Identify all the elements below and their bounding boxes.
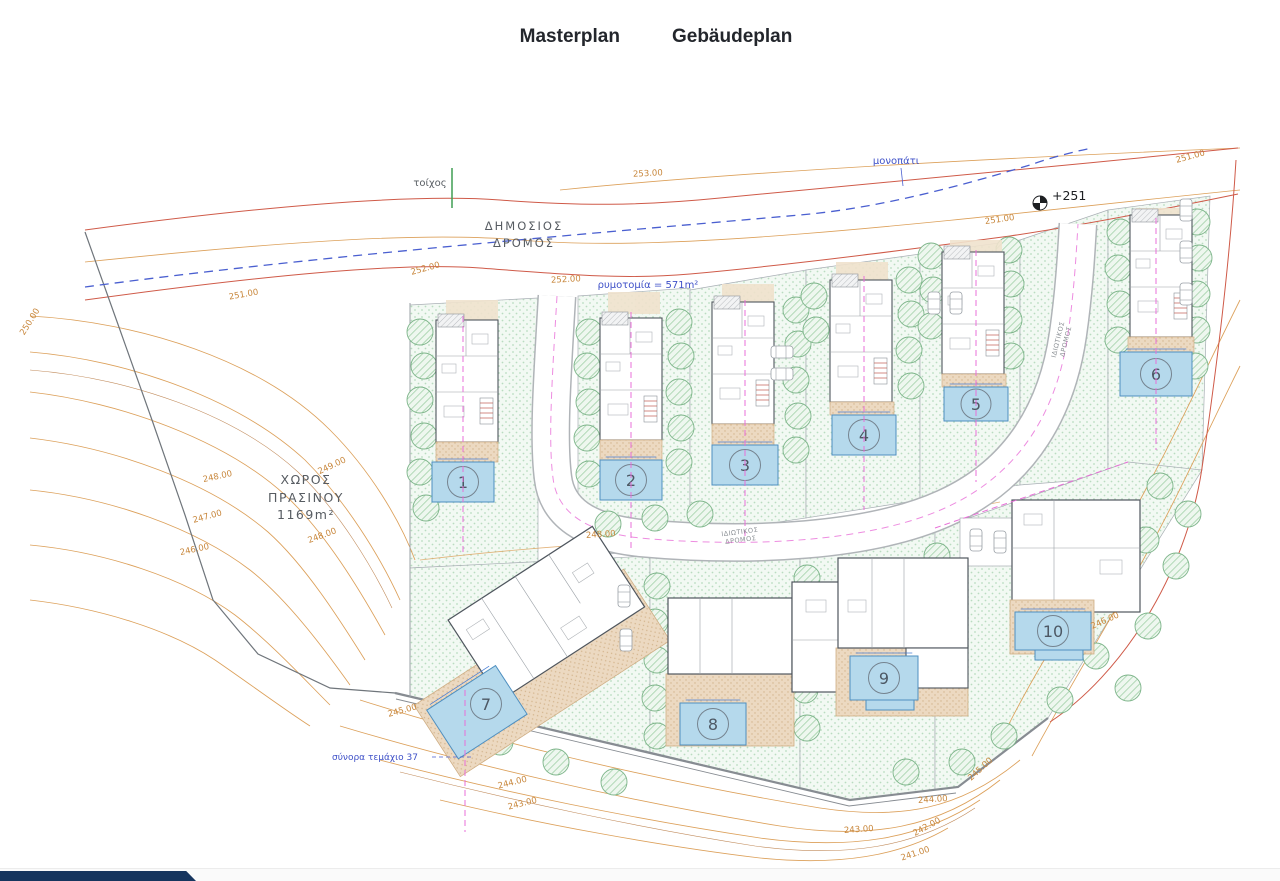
rymotomia-label: ρυμοτομία = 571m²	[598, 279, 699, 291]
svg-text:248.00: 248.00	[586, 529, 616, 541]
svg-text:251.00: 251.00	[1175, 148, 1206, 165]
svg-text:250.00: 250.00	[18, 307, 42, 338]
svg-text:10: 10	[1043, 622, 1063, 641]
svg-text:253.00: 253.00	[633, 168, 663, 180]
green-space-label-2: ΠΡΑΣΙΝΟΥ	[268, 490, 344, 505]
masterplan-container: 1 2 3 4	[0, 0, 1280, 881]
svg-text:244.00: 244.00	[918, 794, 948, 806]
green-space-area: 1169m²	[277, 507, 335, 522]
boundary-note-label: σύνορα τεμάχιο 37	[332, 752, 418, 763]
svg-text:243.00: 243.00	[844, 824, 874, 836]
bottom-bar-partial[interactable]	[0, 871, 196, 881]
svg-text:251.00: 251.00	[228, 288, 259, 303]
svg-text:252.00: 252.00	[551, 274, 581, 286]
svg-text:9: 9	[879, 669, 889, 688]
public-road-label-2: ΔΡΟΜΟΣ	[493, 236, 555, 250]
svg-text:251.00: 251.00	[984, 213, 1015, 227]
svg-text:246.00: 246.00	[179, 542, 210, 558]
svg-text:248.00: 248.00	[307, 526, 338, 546]
plot-8-marker[interactable]: 8	[680, 700, 746, 745]
svg-text:244.00: 244.00	[497, 775, 528, 792]
svg-text:7: 7	[481, 695, 491, 714]
svg-text:247.00: 247.00	[192, 508, 223, 525]
public-road-label-1: ΔΗΜΟΣΙΟΣ	[485, 219, 563, 233]
svg-text:249.00: 249.00	[317, 455, 348, 477]
svg-text:248.00: 248.00	[202, 469, 233, 485]
masterplan-svg: 1 2 3 4	[0, 0, 1280, 881]
svg-text:243.00: 243.00	[507, 796, 538, 813]
svg-text:252.00: 252.00	[410, 260, 441, 277]
footpath-label: μονοπάτι	[873, 155, 920, 167]
page: Masterplan Gebäudeplan	[0, 0, 1280, 881]
svg-text:245.00: 245.00	[387, 702, 418, 719]
svg-text:8: 8	[708, 715, 718, 734]
datum-label: +251	[1052, 188, 1086, 203]
wall-label: τοίχος	[413, 177, 446, 189]
